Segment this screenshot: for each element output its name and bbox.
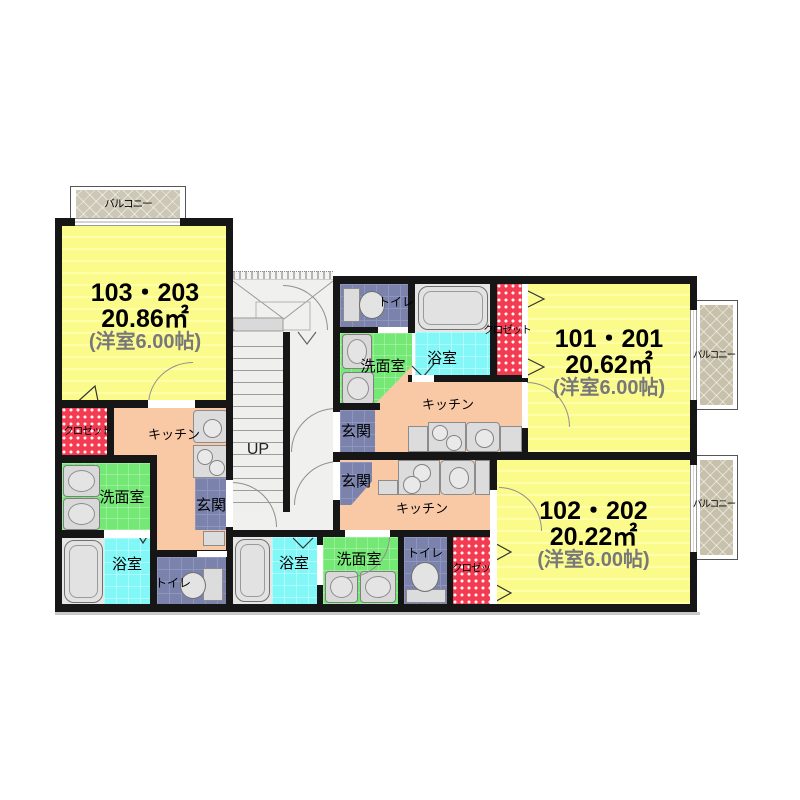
label-toilet-103: トイレ	[155, 577, 187, 589]
label-balcony-102: バルコニー	[685, 500, 743, 510]
wall-stair-stringer	[283, 332, 290, 512]
door-opening-toilet-101	[378, 327, 408, 333]
label-balcony-103: バルコニー	[76, 199, 180, 210]
unit-number: 103・203	[62, 281, 228, 307]
label-closet-103: クロゼット	[58, 426, 116, 437]
label-entrance-102: 玄関	[338, 474, 374, 489]
unit-number: 102・202	[497, 499, 690, 525]
wall-unit101-unit102	[333, 452, 690, 460]
door-opening-bath-102	[317, 545, 323, 585]
label-kitchen-101: キッチン	[422, 398, 470, 411]
wall-exterior-left	[55, 218, 62, 612]
wall-exterior-top-middle	[333, 276, 697, 284]
floor-plan: 103・203 20.86㎡ (洋室6.00帖) 101・201 20.62㎡ …	[0, 0, 800, 800]
window-bedroom-103	[75, 218, 180, 226]
wall-washroom101-south	[333, 403, 380, 410]
unit-room-type: (洋室6.00帖)	[497, 550, 690, 570]
label-entrance-103: 玄関	[194, 498, 228, 513]
label-bathroom-102: 浴室	[272, 556, 316, 571]
door-opening-bath-101	[412, 375, 434, 382]
label-kitchen-102: キッチン	[396, 502, 444, 515]
label-washroom-103: 洗面室	[93, 490, 151, 505]
label-washroom-101: 洗面室	[353, 359, 413, 374]
door-opening-washroom-102	[345, 530, 390, 537]
unit-area: 20.86㎡	[62, 307, 228, 333]
door-opening-bath-103	[104, 530, 150, 538]
unit-room-type: (洋室6.00帖)	[528, 378, 690, 398]
unit-label-103: 103・203 20.86㎡ (洋室6.00帖)	[62, 281, 228, 352]
stair-landing-step	[233, 318, 283, 331]
label-entrance-101: 玄関	[338, 424, 374, 439]
unit-number: 101・201	[528, 327, 690, 353]
unit-room-type: (洋室6.00帖)	[62, 332, 228, 352]
label-balcony-101: バルコニー	[685, 351, 743, 361]
label-stairs-up: UP	[242, 442, 274, 458]
wall-closet103-washroom103	[55, 455, 157, 463]
label-kitchen-103: キッチン	[148, 428, 196, 441]
bath-fold-door-102	[293, 538, 313, 548]
door-opening-bedroom-103	[148, 400, 195, 408]
door-opening-toilet-103	[197, 551, 227, 557]
label-closet-102: クロゼッ	[446, 563, 496, 574]
wall-bedroom103-south	[55, 400, 233, 408]
stair-direction-arrow	[298, 332, 316, 344]
label-bathroom-101: 浴室	[422, 351, 462, 366]
building-entry-opening	[233, 271, 333, 280]
label-toilet-101: トイレ	[378, 296, 408, 308]
unit-label-102: 102・202 20.22㎡ (洋室6.00帖)	[497, 499, 690, 570]
label-bathroom-103: 浴室	[105, 557, 149, 572]
label-washroom-102: 洗面室	[328, 552, 390, 567]
label-closet-101: クロゼット	[479, 325, 535, 336]
wall-washroom102-toilet102	[398, 530, 404, 612]
unit-area: 20.22㎡	[497, 525, 690, 551]
unit-label-101: 101・201 20.62㎡ (洋室6.00帖)	[528, 327, 690, 398]
unit-area: 20.62㎡	[528, 353, 690, 379]
label-toilet-102: トイレ	[406, 547, 444, 559]
